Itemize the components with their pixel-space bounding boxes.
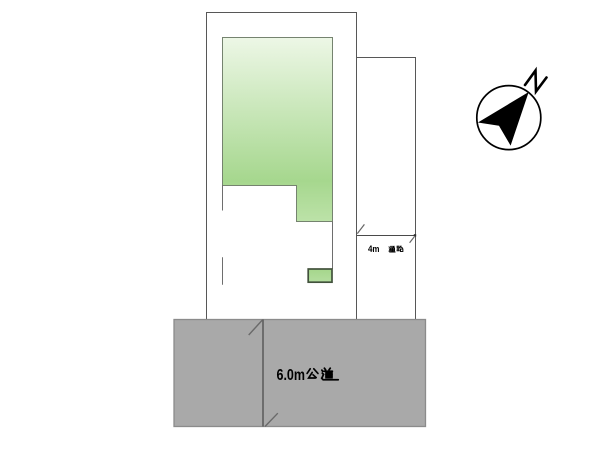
svg-text:4m: 4m	[368, 244, 380, 254]
svg-text:6.0m: 6.0m	[277, 367, 306, 384]
